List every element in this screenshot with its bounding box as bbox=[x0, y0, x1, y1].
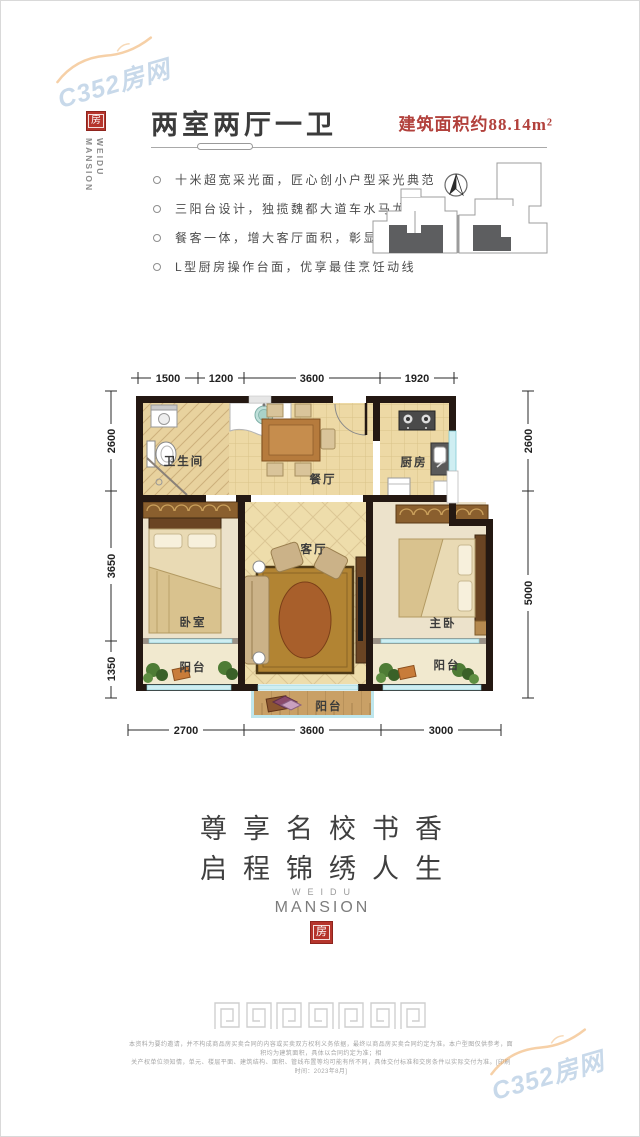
brand-seal-icon: 房 bbox=[86, 111, 106, 131]
dim-top-1: 1500 bbox=[156, 373, 180, 385]
dim-bottom-3: 3000 bbox=[429, 725, 453, 737]
label-balcony-center: 阳台 bbox=[316, 699, 343, 713]
bullet-icon bbox=[153, 234, 161, 242]
dim-right-2: 5000 bbox=[523, 581, 535, 605]
brand-mansion: MANSION bbox=[83, 138, 94, 224]
dim-left-1: 2600 bbox=[106, 429, 118, 453]
dim-top-3: 3600 bbox=[300, 373, 324, 385]
brand-weidu: WEIDU bbox=[94, 138, 105, 224]
dim-left-3: 1350 bbox=[106, 657, 118, 681]
page-title: 两室两厅一卫 bbox=[151, 103, 337, 142]
slogan-line-2: 启程锦绣人生 bbox=[1, 847, 640, 886]
label-master: 主卧 bbox=[430, 616, 457, 630]
label-kitchen: 厨房 bbox=[401, 455, 428, 469]
dim-bottom-2: 3600 bbox=[300, 725, 324, 737]
brand-mansion-footer: MANSION bbox=[1, 899, 640, 917]
disclaimer-line-1: 本资料为要约邀请，并不构成商品房买卖合同的内容或买卖双方权利义务依据，最终以商品… bbox=[129, 1041, 513, 1059]
seal-character: 房 bbox=[88, 114, 104, 128]
label-dining: 餐厅 bbox=[309, 472, 337, 486]
dim-left-2: 3650 bbox=[106, 554, 118, 578]
footer-seal-icon: 房 bbox=[310, 921, 333, 944]
label-living: 客厅 bbox=[300, 542, 328, 556]
slogan-line-1: 尊享名校书香 bbox=[1, 807, 640, 846]
area-label: 建筑面积约88.14m² bbox=[398, 110, 553, 135]
dim-top-2: 1200 bbox=[209, 373, 233, 385]
floor-plan: 卫生间 餐厅 厨房 客厅 卧室 主卧 阳台 阳台 阳台 bbox=[101, 356, 546, 756]
brand-vertical-text: WEIDU MANSION bbox=[83, 138, 105, 224]
seal-character: 房 bbox=[313, 925, 330, 940]
dim-bottom-1: 2700 bbox=[174, 725, 198, 737]
label-balcony-left: 阳台 bbox=[180, 660, 207, 674]
label-balcony-right: 阳台 bbox=[434, 658, 461, 672]
compass-icon bbox=[445, 174, 467, 196]
label-bathroom: 卫生间 bbox=[164, 454, 205, 468]
site-plan bbox=[364, 158, 549, 269]
disclaimer: 本资料为要约邀请，并不构成商品房买卖合同的内容或买卖双方权利义务依据，最终以商品… bbox=[129, 1041, 513, 1077]
bullet-icon bbox=[153, 263, 161, 271]
flyer-page: C352房网 房 WEIDU MANSION 两室两厅一卫 建筑面积约88.14… bbox=[0, 0, 640, 1137]
label-bedroom: 卧室 bbox=[180, 615, 207, 629]
meander-ornament bbox=[213, 1000, 429, 1037]
bullet-icon bbox=[153, 176, 161, 184]
header-divider-capsule bbox=[197, 143, 253, 150]
disclaimer-line-2: 关产权单位须知情，单元、楼层平面、建筑结构、面积、管线布置等均可能有所不同，具体… bbox=[129, 1059, 513, 1077]
brand-weidu-footer: WEIDU bbox=[1, 887, 640, 897]
dim-top-4: 1920 bbox=[405, 373, 429, 385]
bullet-icon bbox=[153, 205, 161, 213]
car-swoosh-icon bbox=[48, 32, 161, 87]
dim-right-1: 2600 bbox=[523, 429, 535, 453]
